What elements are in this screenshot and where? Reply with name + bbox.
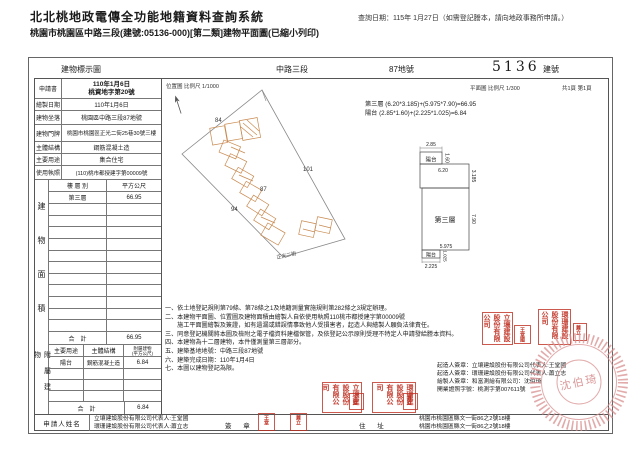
document-frame: 建物標示圖 中路三段 87地號 5136 建號 申請書 110年1月6日 桃資地… <box>28 57 613 434</box>
balcony-bottom-label: 陽台 <box>426 252 436 259</box>
accessory-structure-header: 主體結構 <box>84 345 124 356</box>
site-plan-map: 84 101 87 94 正光二街 <box>165 87 395 287</box>
rep2-seal-mid: 蕭立志 <box>403 393 418 410</box>
dim-5-975: 5.975 <box>440 244 453 250</box>
accessory-side-label: 附屬建物 <box>35 345 49 414</box>
note-2: 二、本建物平面圖、位置圖及建物面積由繪製人自依使用執照110桃市都授建字第000… <box>165 314 458 323</box>
accessory-row: 陽台 鋼筋混凝土造 6.84 <box>49 357 161 369</box>
location-value: 桃園區中路三段87地號 <box>62 111 161 124</box>
accessory-structure: 鋼筋混凝土造 <box>84 357 124 368</box>
accessory-total-value: 6.84 <box>125 402 161 414</box>
signature-label: 簽 章 <box>225 420 255 430</box>
area-formulas: 第三層 (6.20*3.185)+(5.975*7.90)=66.95 陽台 (… <box>365 101 476 118</box>
company1-seal-right: 立壤建設股份有限公司 <box>482 312 513 345</box>
floor-empty-rows <box>49 204 161 332</box>
application-label: 申請書 <box>35 79 62 98</box>
applicant-row: 申請人姓名 立壤建設股份有限公司代表人:王堂國 環珊建設股份有限公司代表人:蕭立… <box>35 414 608 431</box>
accessory-use-header: 主要用途 <box>49 345 84 356</box>
applicant-addresses: 桃園市桃園區縣文一街86之2號18樓 桃園市桃園區縣文一街86之2號18樓 <box>419 416 510 431</box>
floor-plan: 2.85 陽台 1.60 6.20 3.185 第三層 7.90 5.975 陽… <box>407 134 517 274</box>
accessory-table: 附屬建物 主要用途 主體結構 附屬建物 (平方公尺) 陽台 鋼筋混凝土造 6.8… <box>35 345 161 414</box>
form-grid: 申請書 110年1月6日 桃資地字第20號 繪製日期 110年1月6日 建物坐落… <box>34 78 609 431</box>
site-label-94: 94 <box>231 207 238 213</box>
floor-name: 第三層 <box>49 192 107 203</box>
rep1-seal-row: 王堂國 <box>258 413 275 431</box>
accessory-total-row: 合 計 6.84 <box>49 402 161 414</box>
dim-2-225: 2.225 <box>425 264 438 270</box>
note-1: 一、依土地登記規則第79條、第78條之1及地籍測量實施規則第282條之3規定辦理… <box>165 305 458 314</box>
floor-col-header: 樓 層 別 <box>49 180 107 191</box>
floor-table-header: 樓 層 別 平方公尺 <box>49 180 161 192</box>
floor-total-label: 合 計 <box>49 332 107 344</box>
doc-subtitle: 桃園市桃園區中路三段(建號:05136-000)[第二類]建物平面圖(已縮小列印… <box>30 26 319 39</box>
dim-2-85: 2.85 <box>426 142 436 148</box>
balcony-top-label: 陽台 <box>425 156 437 164</box>
application-value: 110年1月6日 桃資地字第20號 <box>62 79 161 98</box>
use-value: 集合住宅 <box>62 154 161 165</box>
structure-label: 主體結構 <box>35 142 62 153</box>
dim-7-90: 7.90 <box>470 214 476 224</box>
draw-date-value: 110年1月6日 <box>62 99 161 110</box>
accessory-area-header: 附屬建物 (平方公尺) <box>124 345 161 356</box>
site-label-84: 84 <box>215 118 222 124</box>
row-address: 建物門牌 桃園市桃園區正光二街25巷30號三樓 <box>35 125 161 142</box>
street-name: 正光二街 <box>276 250 297 261</box>
floor-plan-scale: 平面圖 比例尺 1/300 <box>470 84 520 92</box>
application-date: 110年1月6日 <box>93 81 130 89</box>
applicant-address-1: 桃園市桃園區縣文一街86之2號18樓 <box>419 416 510 424</box>
map-type-label: 建物標示圖 <box>61 64 101 75</box>
surveyor-circle-stamp: 沈伯琦 <box>527 330 631 434</box>
dim-1-025: 1.025 <box>443 250 448 262</box>
building-number: 5136 <box>492 59 540 75</box>
page-number: 共1頁 第1頁 <box>562 84 592 92</box>
building-outlines <box>210 118 333 245</box>
row-draw-date: 繪製日期 110年1月6日 <box>35 99 161 111</box>
applicant-names: 立壤建設股份有限公司代表人:王堂國 環珊建設股份有限公司代表人:蕭立志 <box>94 416 188 431</box>
formula-third-floor: 第三層 (6.20*3.185)+(5.975*7.90)=66.95 <box>365 101 476 110</box>
sqm-col-header: 平方公尺 <box>107 180 161 191</box>
license-label: 使用執照 <box>35 166 62 179</box>
note-2b: 施工平面圖繪製及簽證，如有遺漏或錯誤情事致他人受損害者，起造人與繪製人願負法律責… <box>165 322 458 331</box>
row-license: 使用執照 (110)桃市都授建字第00009號 <box>35 166 161 180</box>
note-7: 七、本圖以建物登記為限。 <box>165 365 458 374</box>
land-number: 87地號 <box>389 64 414 75</box>
rep2-seal-row: 蕭立志 <box>290 413 307 431</box>
site-label-101: 101 <box>303 167 314 173</box>
floor-area: 66.95 <box>107 192 161 203</box>
floor-area-table: 建物面積 樓 層 別 平方公尺 第三層 66.95 <box>35 180 161 345</box>
row-location: 建物坐落 桃園區中路三段87地號 <box>35 111 161 125</box>
address-column-label: 住 址 <box>359 420 389 430</box>
applicant-name-1: 立壤建設股份有限公司代表人:王堂國 <box>94 416 188 424</box>
accessory-use: 陽台 <box>49 357 84 368</box>
applicant-name-2: 環珊建設股份有限公司代表人:蕭立志 <box>94 424 188 432</box>
note-5: 五、建築基地地號：中路三段87地號 <box>165 348 458 357</box>
site-label-87: 87 <box>260 187 267 193</box>
dim-3-185: 3.185 <box>470 170 476 183</box>
application-doc-no: 桃資地字第20號 <box>88 89 134 97</box>
left-panel: 申請書 110年1月6日 桃資地字第20號 繪製日期 110年1月6日 建物坐落… <box>35 79 162 414</box>
note-4: 四、本建物為十二層建物，本件僅測量第三層部分。 <box>165 339 458 348</box>
dim-6-20: 6.20 <box>438 168 448 174</box>
floor-total-value: 66.95 <box>107 332 161 344</box>
accessory-total-label: 合 計 <box>49 402 125 414</box>
address-value: 桃園市桃園區正光二街25巷30號三樓 <box>62 125 161 141</box>
license-value: (110)桃市都授建字第00009號 <box>62 166 161 179</box>
applicant-name-label: 申請人姓名 <box>35 415 90 431</box>
note-6: 六、建築完成日期：110年1月4日 <box>165 357 458 366</box>
structure-value: 鋼筋混凝土造 <box>62 142 161 153</box>
third-floor-label: 第三層 <box>435 215 456 224</box>
accessory-area: 6.84 <box>124 357 161 368</box>
address-label: 建物門牌 <box>35 125 62 141</box>
use-label: 主要用途 <box>35 154 62 165</box>
floor-total-row: 合 計 66.95 <box>49 332 161 345</box>
location-label: 建物坐落 <box>35 111 62 124</box>
notes-list: 一、依土地登記規則第79條、第78條之1及地籍測量實施規則第282條之3規定辦理… <box>165 305 458 374</box>
accessory-header: 主要用途 主體結構 附屬建物 (平方公尺) <box>49 345 161 357</box>
system-title: 北北桃地政電傳全功能地籍資料查詢系統 <box>30 8 264 25</box>
rep1-seal-mid: 王堂國 <box>349 393 364 410</box>
row-structure: 主體結構 鋼筋混凝土造 <box>35 142 161 154</box>
formula-balcony: 陽台 (2.85*1.60)+(2.225*1.025)=6.84 <box>365 110 476 119</box>
floor-row: 第三層 66.95 <box>49 192 161 204</box>
building-number-label: 建號 <box>543 64 559 75</box>
row-use: 主要用途 集合住宅 <box>35 154 161 166</box>
row-application: 申請書 110年1月6日 桃資地字第20號 <box>35 79 161 99</box>
query-date: 查詢日期：115年 1月27日（如需登記謄本，請向地政事務所申請。） <box>358 13 568 23</box>
draw-date-label: 繪製日期 <box>35 99 62 110</box>
floor-area-side-label: 建物面積 <box>35 180 49 345</box>
dim-1-60: 1.60 <box>444 153 450 163</box>
surveyor-name: 沈伯琦 <box>558 371 599 393</box>
applicant-address-2: 桃園市桃園區縣文一街86之2號18樓 <box>419 424 510 432</box>
section-name: 中路三段 <box>276 64 308 75</box>
